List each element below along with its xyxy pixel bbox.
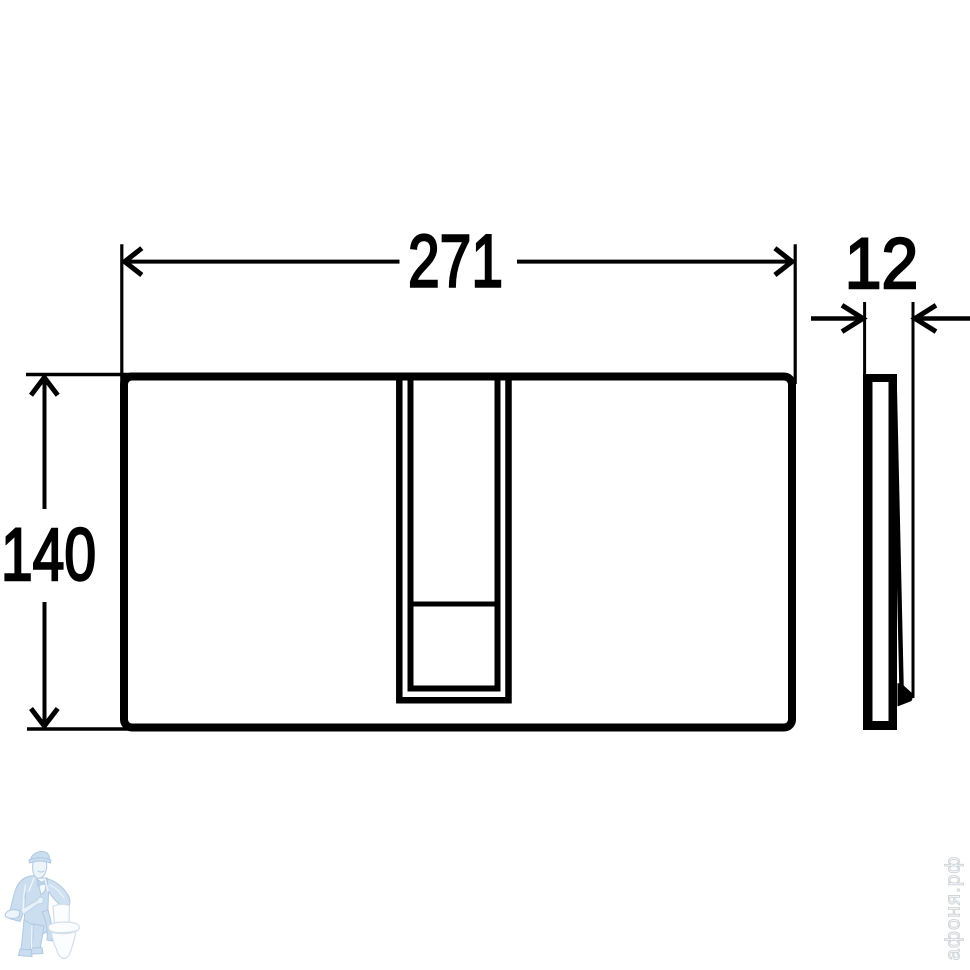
svg-text:140: 140 bbox=[1, 513, 96, 596]
svg-text:12: 12 bbox=[845, 224, 918, 304]
svg-text:афоня.рф: афоня.рф bbox=[942, 856, 965, 961]
svg-text:271: 271 bbox=[408, 219, 503, 302]
